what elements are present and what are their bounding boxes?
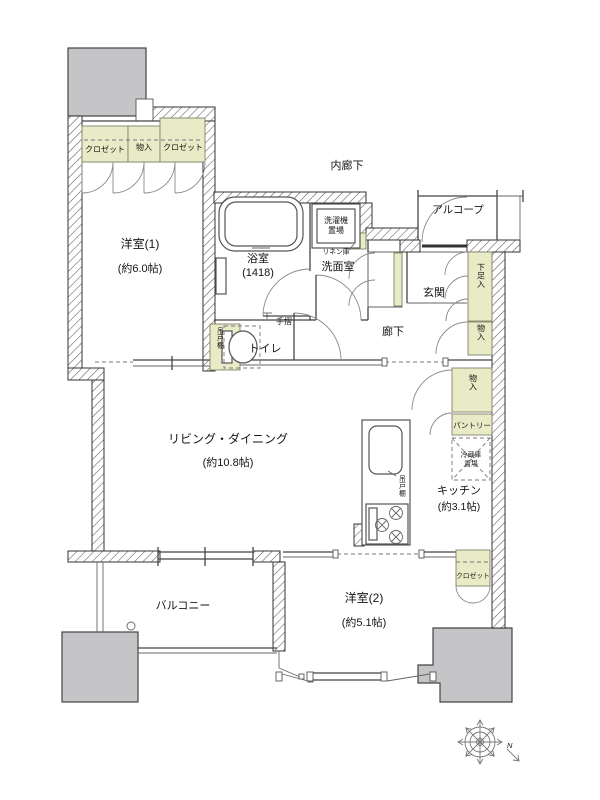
north-label: N [507,741,513,750]
label-pantry: パントリー [453,421,491,430]
bathtub-inner [225,202,297,246]
label-kitchen-size: (約3.1帖) [438,500,481,513]
label-bedroom1-size: (約6.0帖) [118,261,163,275]
pillar-bottom-left [62,632,138,702]
label-bedroom1: 洋室(1) [121,236,160,251]
label-toilet-cabinet: 吊戸棚 [217,327,224,349]
hall-closet-green [394,253,402,306]
floor-plan: クロゼット 物入 クロゼット 洋室(1) (約6.0帖) 浴室 (1418) 洗… [0,0,600,800]
label-fridge-1: 冷蔵庫 [461,450,482,459]
label-toilet: トイレ [249,343,282,355]
label-hanging-cupboard: 吊戸棚 [399,475,406,497]
label-washroom: 洗面室 [322,259,355,273]
label-alcove: アルコープ [432,204,484,216]
label-inner-corridor: 内廊下 [331,158,364,172]
label-closet-1: クロゼット [85,144,125,154]
label-laundry-1: 洗濯機 [324,215,348,225]
label-storage-1: 物入 [136,142,152,152]
label-fridge-2: 置場 [464,459,478,468]
label-entry-storage: 物入 [477,323,485,341]
floor-plan-drawing: クロゼット 物入 クロゼット 洋室(1) (約6.0帖) 浴室 (1418) 洗… [0,0,600,800]
label-living: リビング・ダイニング [168,431,288,446]
closet-bedroom2-box [456,550,490,586]
label-bath-size: (1418) [242,267,274,279]
label-closet-2: クロゼット [163,142,203,152]
label-bedroom2-size: (約5.1帖) [342,615,387,629]
bath-counter [216,258,226,294]
label-bedroom2: 洋室(2) [345,590,384,605]
label-laundry-2: 置場 [328,225,344,235]
label-shoe-cabinet: 下足入 [477,263,485,289]
label-entrance: 玄関 [423,285,445,299]
label-balcony: バルコニー [156,599,211,612]
closet-bedroom1-left [82,126,128,162]
pillar-top-left [68,48,146,116]
label-hall-storage: 物入 [469,373,477,391]
label-linen: リネン庫 [322,247,349,256]
wall-step [136,99,153,121]
label-handrail: 手摺 [276,316,292,326]
label-corridor: 廊下 [382,324,404,338]
label-bedroom2-closet: クロゼット [456,571,490,580]
label-kitchen: キッチン [437,484,481,497]
label-living-size: (約10.8帖) [203,455,254,469]
kitchen-sink [369,426,402,474]
label-bath: 浴室 [247,251,269,265]
